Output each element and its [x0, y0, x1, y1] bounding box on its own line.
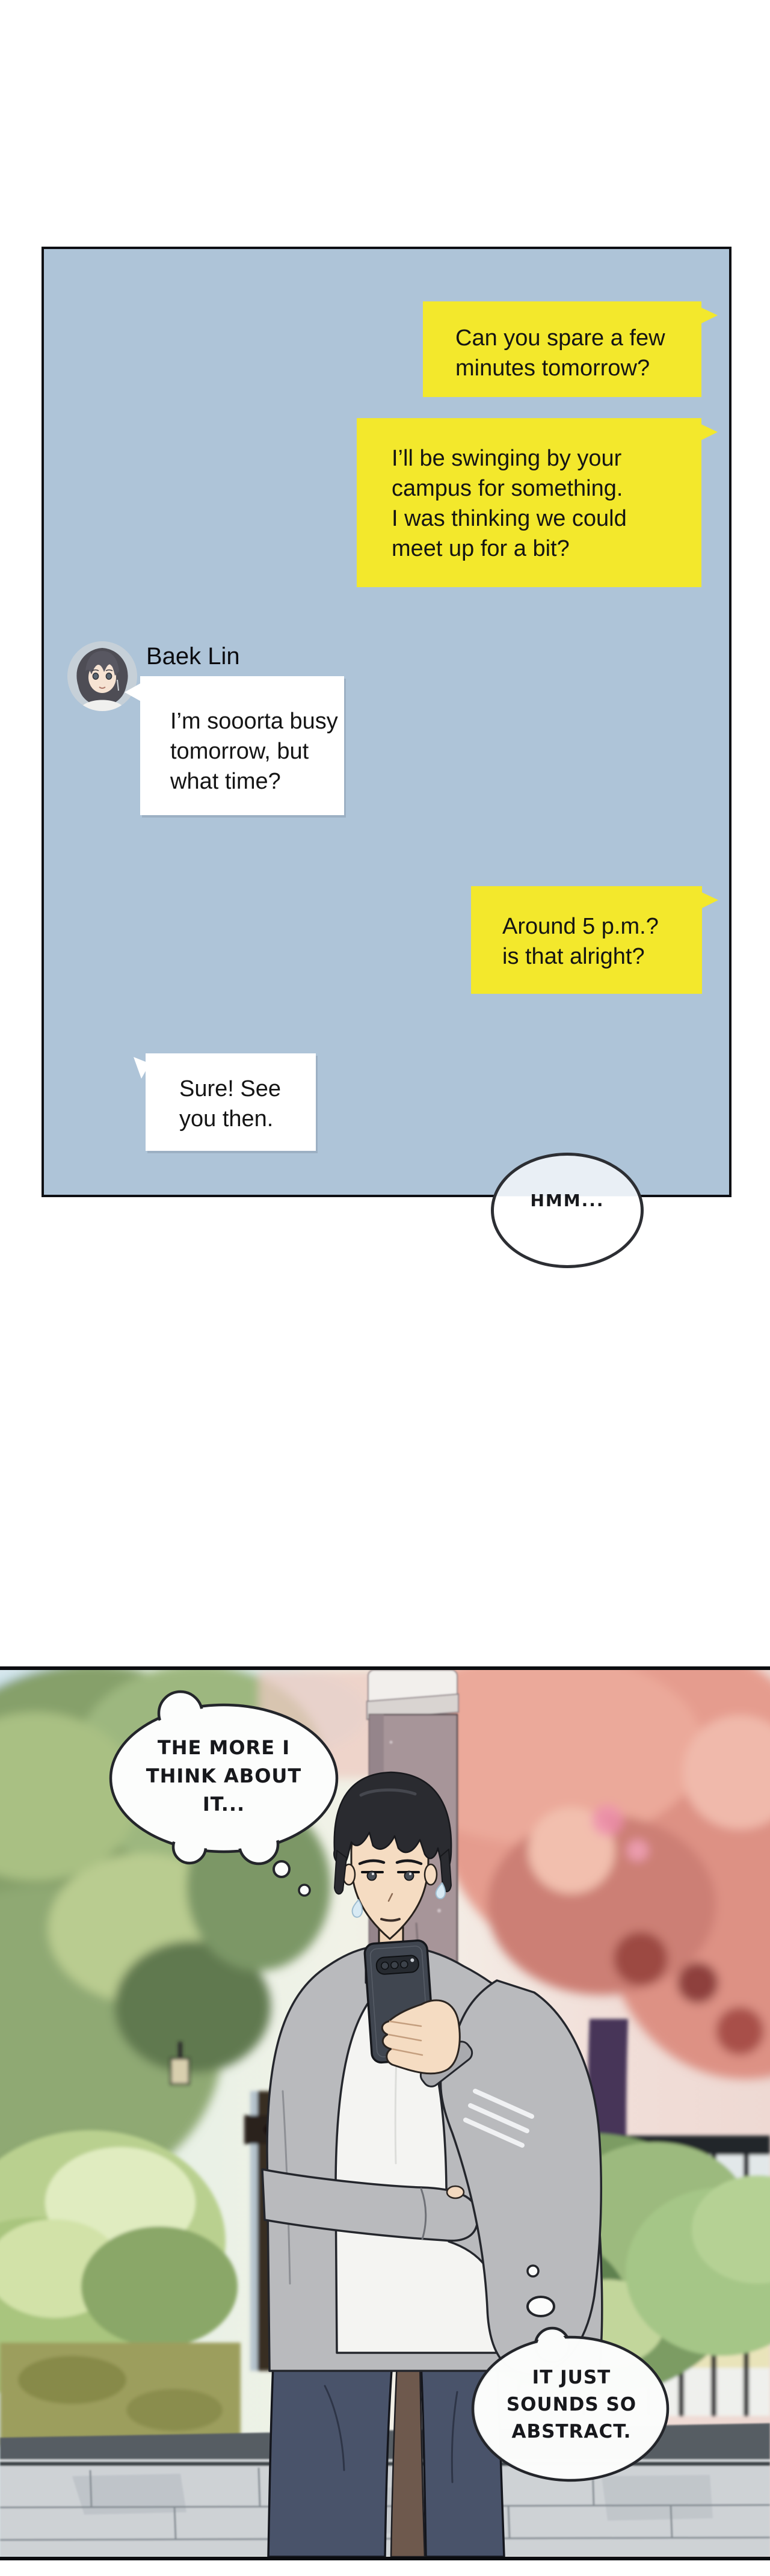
chat-bubble-receiver-2: Sure! See you then.	[146, 1053, 316, 1151]
chat-bubble-sender-2: I’ll be swinging by your campus for some…	[357, 418, 701, 587]
contact-name: Baek Lin	[146, 643, 240, 670]
character-eye-right	[405, 1872, 414, 1881]
reaction-text: HMM...	[530, 1191, 604, 1231]
chat-message-text: I’ll be swinging by your campus for some…	[392, 443, 701, 564]
speech-trail-dot	[528, 2266, 538, 2276]
chat-bubble-receiver-1: I’m sooorta busy tomorrow, but what time…	[140, 676, 344, 815]
avatar-girl-illustration	[67, 641, 137, 711]
reaction-bubble: HMM...	[491, 1153, 644, 1268]
thought-trail-dot	[299, 1885, 310, 1896]
chat-message-text: Can you spare a few minutes tomorrow?	[455, 323, 701, 383]
chat-message-text: I’m sooorta busy tomorrow, but what time…	[170, 706, 344, 797]
thought-trail-dot	[274, 1861, 289, 1877]
chat-bubble-sender-1: Can you spare a few minutes tomorrow?	[423, 301, 701, 397]
speech-trail-dot	[528, 2297, 554, 2316]
avatar-eye-left	[93, 673, 98, 679]
contact-avatar	[67, 641, 137, 711]
character-jeans	[268, 2349, 504, 2557]
chat-message-text: Sure! See you then.	[179, 1074, 316, 1134]
chat-bubble-sender-3: Around 5 p.m.? is that alright?	[471, 886, 702, 994]
thought-bubble-text: THE MORE I THINK ABOUT IT...	[128, 1734, 320, 1819]
speech-bubble-text: IT JUST SOUNDS SO ABSTRACT.	[481, 2364, 662, 2445]
chat-message-text: Around 5 p.m.? is that alright?	[502, 911, 702, 972]
character-eye-left	[368, 1872, 377, 1881]
webtoon-page: Can you spare a few minutes tomorrow? I’…	[0, 0, 770, 2576]
avatar-eye-right	[106, 673, 111, 679]
